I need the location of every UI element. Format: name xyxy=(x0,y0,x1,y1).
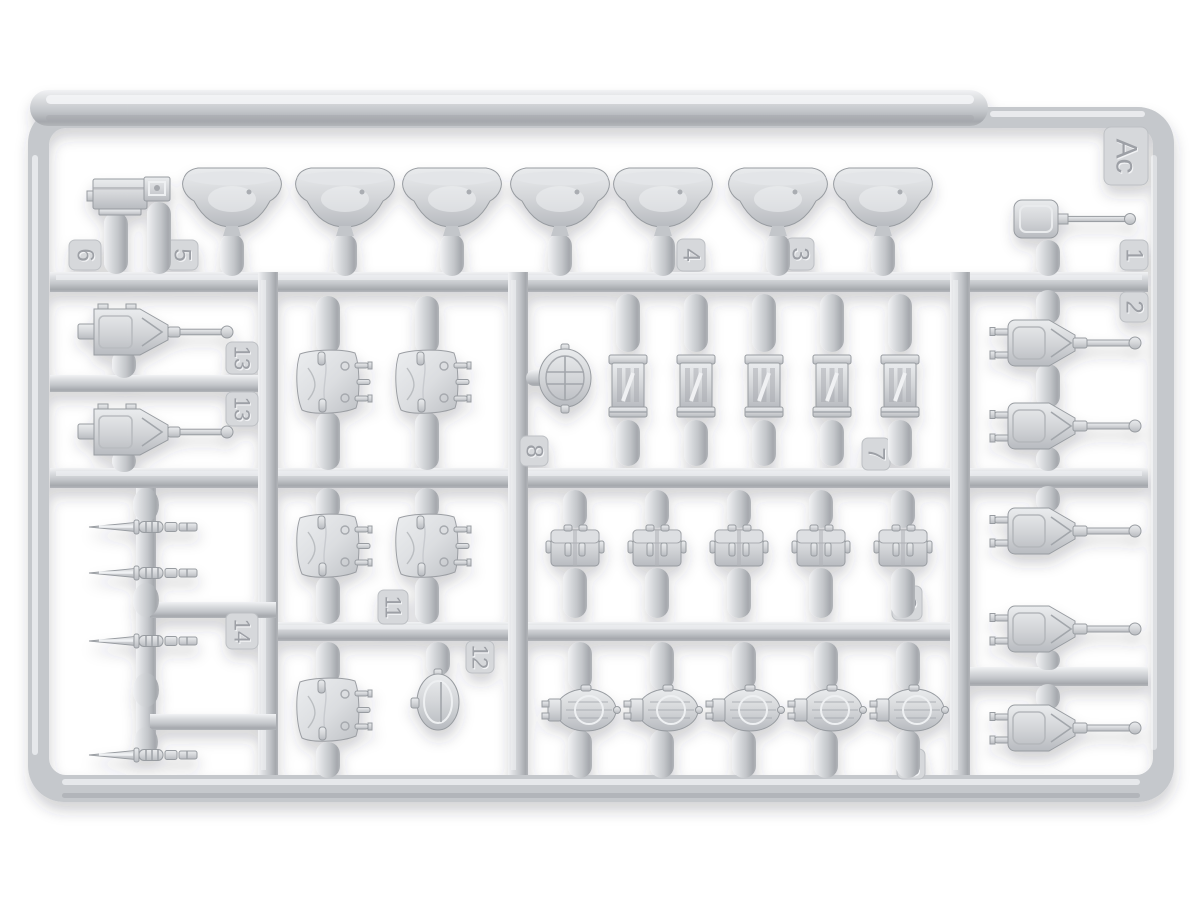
part-8-round-lid xyxy=(539,344,591,413)
top-feed-shade xyxy=(46,115,974,121)
part-14-bayonet xyxy=(89,634,197,648)
part-tag-13b: 1313 xyxy=(226,392,258,426)
frame-left-highlight xyxy=(32,155,38,755)
sprue: 66 55 44 33 11 22 1313 1313 1414 1111 12… xyxy=(28,90,1174,802)
runner-highlight xyxy=(511,280,516,770)
svg-text:1: 1 xyxy=(1121,248,1148,261)
part-7-canister xyxy=(881,355,919,417)
part-7-canister xyxy=(813,355,851,417)
runner-highlight xyxy=(56,275,1142,280)
frame-right-highlight xyxy=(1151,155,1157,750)
part-2-turret xyxy=(990,606,1141,652)
part-tag-13a: 1313 xyxy=(226,342,258,374)
part-11-pack xyxy=(297,514,372,577)
part-13-gun-mount xyxy=(78,404,233,455)
svg-text:13: 13 xyxy=(230,346,255,370)
part-11-pack xyxy=(297,678,372,741)
svg-text:Ac: Ac xyxy=(1110,138,1143,173)
svg-text:3: 3 xyxy=(787,247,814,260)
part-12-canteen xyxy=(411,669,459,730)
helmet-part xyxy=(183,168,282,236)
part-11-pack xyxy=(396,514,471,577)
part-tag-11: 1111 xyxy=(378,590,408,624)
svg-text:5: 5 xyxy=(169,248,196,261)
frame-bottom-highlight xyxy=(62,779,1140,785)
gate-node xyxy=(133,673,159,707)
part-tag-8: 88 xyxy=(520,436,549,466)
part-10-kit-bag xyxy=(542,685,621,731)
part-tag-1: 11 xyxy=(1120,240,1149,270)
part-tag-2: 22 xyxy=(1120,292,1149,322)
svg-text:12: 12 xyxy=(468,645,493,669)
part-9-pouch xyxy=(710,525,768,566)
part-9-pouch xyxy=(792,525,850,566)
helmet-part xyxy=(403,168,502,236)
part-7-canister xyxy=(745,355,783,417)
part-9-pouch xyxy=(546,525,604,566)
part-5-small-box xyxy=(144,177,170,201)
part-2-turret xyxy=(990,320,1141,366)
svg-text:14: 14 xyxy=(230,619,255,643)
helmet-part xyxy=(296,168,395,236)
part-10-kit-bag xyxy=(788,685,867,731)
part-4-helmet xyxy=(614,168,713,236)
part-14-bayonet xyxy=(89,748,197,762)
sprue-letter-tag: AcAc xyxy=(1104,127,1148,185)
part-7-canister xyxy=(609,355,647,417)
runner-horizontal-lower xyxy=(258,622,970,641)
runner-highlight xyxy=(264,625,964,630)
part-1-shovel xyxy=(1014,200,1136,238)
part-11-pack xyxy=(396,350,471,413)
runner-left-divider xyxy=(50,375,278,392)
part-11-pack xyxy=(297,350,372,413)
runner-highlight xyxy=(56,471,1142,476)
svg-text:2: 2 xyxy=(1121,300,1148,313)
part-2-turret xyxy=(990,705,1141,751)
svg-text:11: 11 xyxy=(381,596,406,619)
svg-text:13: 13 xyxy=(230,397,255,421)
part-10-kit-bag xyxy=(706,685,785,731)
svg-text:7: 7 xyxy=(863,447,890,460)
part-10-kit-bag xyxy=(870,685,949,731)
part-tag-6: 66 xyxy=(69,240,101,270)
part-tag-12: 1212 xyxy=(466,641,494,673)
part-13-gun-mount xyxy=(78,304,233,355)
part-2-turret xyxy=(990,403,1141,449)
svg-text:4: 4 xyxy=(678,248,705,261)
runner-highlight xyxy=(261,280,266,770)
part-10-kit-bag xyxy=(624,685,703,731)
part-2-turret xyxy=(990,508,1141,554)
svg-text:6: 6 xyxy=(72,248,99,261)
part-14-bayonet xyxy=(89,520,197,534)
sprue-photo: 66 55 44 33 11 22 1313 1313 1414 1111 12… xyxy=(0,0,1200,900)
runner-highlight xyxy=(953,280,958,770)
part-14-bayonet xyxy=(89,566,197,580)
part-9-pouch xyxy=(874,525,932,566)
bayonet-branch-2 xyxy=(150,714,276,730)
helmet-part xyxy=(511,168,610,236)
part-9-pouch xyxy=(628,525,686,566)
part-3-helmet xyxy=(729,168,828,236)
part-7-canister xyxy=(677,355,715,417)
part-tag-14: 1414 xyxy=(226,613,258,649)
svg-text:8: 8 xyxy=(521,444,548,457)
part-tag-7: 77 xyxy=(862,438,891,470)
helmet-part xyxy=(834,168,933,236)
gate-node xyxy=(133,488,159,522)
top-feed-highlight xyxy=(46,95,974,104)
frame-top-highlight xyxy=(990,111,1145,117)
gate-node xyxy=(133,583,159,617)
part-tag-4: 44 xyxy=(677,239,706,271)
frame-bottom-shade xyxy=(62,793,1140,798)
part-tag-3: 33 xyxy=(786,238,815,270)
